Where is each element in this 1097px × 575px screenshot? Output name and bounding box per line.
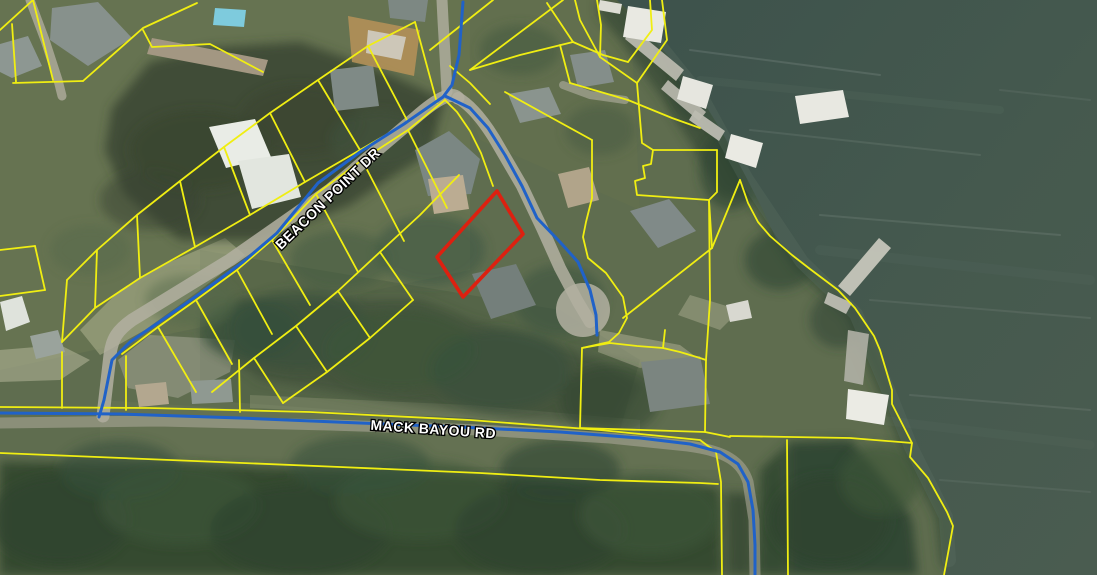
map-layers	[0, 0, 1097, 575]
aerial-map-canvas: BEACON POINT DRMACK BAYOU RD	[0, 0, 1097, 575]
parcel-boundary-line[interactable]	[239, 360, 240, 412]
building-roof	[330, 65, 379, 111]
tree-canopy	[500, 440, 620, 500]
boat	[623, 6, 666, 43]
pavement-road	[442, 0, 447, 92]
pavement-road	[556, 283, 610, 337]
building-roof	[641, 356, 710, 412]
parcel-boundary-line[interactable]	[787, 440, 788, 575]
map-viewport[interactable]: BEACON POINT DRMACK BAYOU RD	[0, 0, 1097, 575]
boat	[846, 389, 889, 425]
tree-canopy	[375, 215, 485, 285]
tree-canopy	[60, 440, 180, 500]
tree-canopy	[430, 330, 570, 410]
building-roof	[213, 8, 246, 27]
building-roof	[135, 382, 169, 407]
